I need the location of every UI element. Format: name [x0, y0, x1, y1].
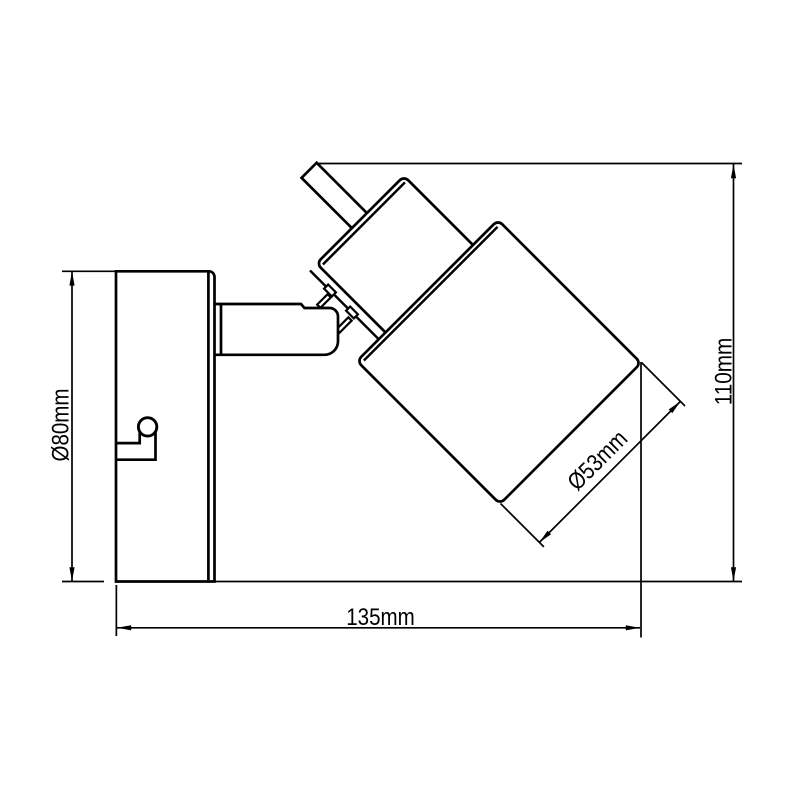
svg-text:110mm: 110mm — [711, 338, 738, 406]
svg-text:Ø80mm: Ø80mm — [48, 389, 75, 462]
svg-text:135mm: 135mm — [346, 604, 415, 631]
